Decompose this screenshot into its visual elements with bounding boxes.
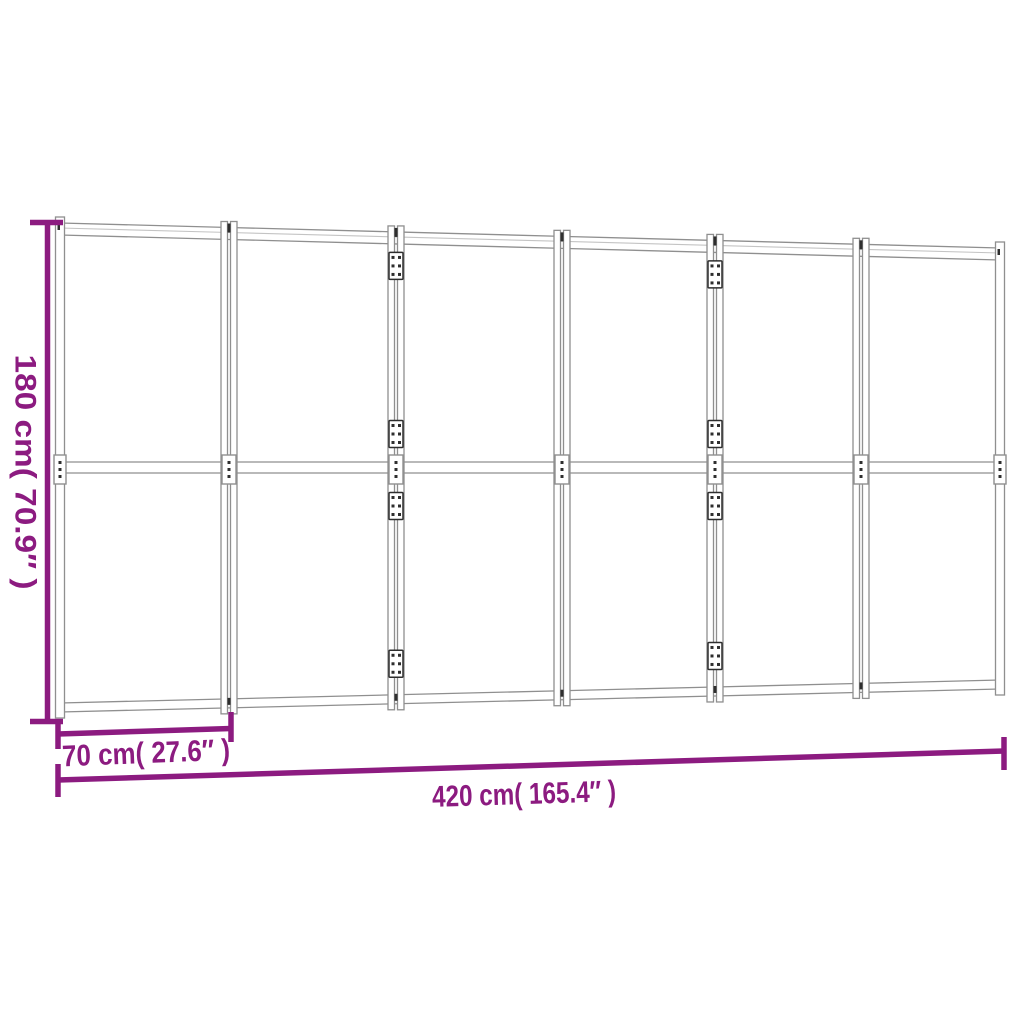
top-pivot-pin	[228, 223, 231, 232]
top-rail-edge	[861, 244, 1000, 248]
bottom-rail-edge	[229, 704, 396, 708]
top-rail-bevel	[715, 245, 861, 249]
hinge-screw	[711, 424, 714, 427]
bracket-screw	[228, 475, 231, 478]
hinge-screw	[711, 264, 714, 267]
hinge-screw	[717, 424, 720, 427]
bottom-rail-edge	[396, 691, 562, 695]
top-pivot-pin	[714, 236, 717, 245]
bracket-screw	[860, 475, 863, 478]
bottom-rail-edge	[715, 692, 861, 696]
hinge-screw	[717, 505, 720, 508]
panel-width-dimension-label: 70 cm( 27.6″ )	[61, 734, 230, 774]
hinge-screw	[392, 496, 395, 499]
top-rail-edge	[60, 235, 229, 239]
bottom-pivot-pin	[561, 690, 564, 697]
hinge-screw	[717, 281, 720, 284]
bottom-rail-edge	[562, 687, 715, 691]
hinge-screw	[398, 671, 401, 674]
hinge-screw	[392, 424, 395, 427]
bracket-screw	[561, 475, 564, 478]
bottom-rail-edge	[229, 695, 396, 699]
total-width-dimension-label: 420 cm( 165.4″ )	[432, 775, 617, 814]
bottom-pivot-pin	[395, 694, 398, 701]
hinge-screw	[392, 441, 395, 444]
top-rail-edge	[229, 239, 396, 243]
dimension-labels: 180 cm( 70.9″ ) 70 cm( 27.6″ ) 420 cm( 1…	[9, 355, 617, 814]
panel-width-dimension-line	[58, 729, 231, 735]
bracket-screw	[714, 461, 717, 464]
top-rail-edge	[229, 227, 396, 231]
bottom-rail-edge	[562, 696, 715, 700]
top-rail-edge	[396, 232, 562, 236]
hinge-screw	[392, 256, 395, 259]
top-pivot-pin	[860, 240, 863, 249]
hinge-screw	[398, 513, 401, 516]
bracket-screw	[228, 468, 231, 471]
hinge-screw	[392, 654, 395, 657]
top-rail-edge	[562, 248, 715, 252]
hinge-screw	[398, 441, 401, 444]
edge-pin	[998, 249, 1001, 255]
bracket-screw	[395, 475, 398, 478]
hinge-screw	[398, 424, 401, 427]
hinge-screw	[717, 441, 720, 444]
top-rail-edge	[715, 240, 861, 244]
hinge-screw	[711, 281, 714, 284]
bracket-screw	[561, 461, 564, 464]
hinge-screw	[711, 654, 714, 657]
bracket-screw	[999, 475, 1002, 478]
hinge-screw	[717, 264, 720, 267]
hinge-screw	[717, 646, 720, 649]
bottom-pivot-pin	[228, 698, 231, 705]
bottom-rail-edge	[715, 683, 861, 687]
bottom-pivot-pin	[714, 686, 717, 693]
top-rail-bevel	[229, 232, 396, 236]
bracket-screw	[59, 475, 62, 478]
bracket-screw	[999, 468, 1002, 471]
hinge-screw	[398, 273, 401, 276]
hinge-screw	[711, 505, 714, 508]
hinge-screw	[398, 654, 401, 657]
bracket-screw	[59, 468, 62, 471]
bracket-screw	[59, 461, 62, 464]
hinge-screw	[392, 264, 395, 267]
hinge-screw	[717, 654, 720, 657]
bracket-screw	[395, 468, 398, 471]
hinge-screw	[711, 433, 714, 436]
hinge-screw	[717, 663, 720, 666]
top-rail-bevel	[60, 228, 229, 232]
top-rail-bevel	[396, 237, 562, 241]
top-rail-bevel	[562, 241, 715, 245]
hinge-screw	[398, 662, 401, 665]
height-dimension-label: 180 cm( 70.9″ )	[9, 355, 42, 590]
bracket-screw	[714, 475, 717, 478]
room-divider-diagram-page: 180 cm( 70.9″ ) 70 cm( 27.6″ ) 420 cm( 1…	[0, 0, 1024, 1024]
bracket-screw	[561, 468, 564, 471]
bracket-screw	[714, 468, 717, 471]
room-divider-diagram: 180 cm( 70.9″ ) 70 cm( 27.6″ ) 420 cm( 1…	[0, 0, 1024, 1024]
hinge-screw	[717, 496, 720, 499]
hinge-screw	[392, 671, 395, 674]
bottom-rail-edge	[396, 700, 562, 704]
hinge-screw	[711, 441, 714, 444]
hinge-screw	[392, 273, 395, 276]
bottom-rail-edge	[861, 680, 1000, 683]
hinge-screw	[392, 505, 395, 508]
hinge-screw	[717, 273, 720, 276]
hinge-screw	[398, 256, 401, 259]
hinge-screw	[392, 513, 395, 516]
top-rail-bevel	[861, 249, 1000, 253]
bracket-screw	[228, 461, 231, 464]
bracket-screw	[395, 461, 398, 464]
bracket-screw	[999, 461, 1002, 464]
top-rail-edge	[715, 252, 861, 256]
bottom-pivot-pin	[860, 682, 863, 689]
hinge-screw	[711, 273, 714, 276]
top-rail-edge	[60, 223, 229, 227]
bottom-rail-edge	[861, 689, 1000, 692]
hinge-screw	[711, 646, 714, 649]
hinge-screw	[717, 513, 720, 516]
top-pivot-pin	[395, 228, 398, 237]
hinge-screw	[398, 496, 401, 499]
bracket-screw	[860, 461, 863, 464]
top-rail-edge	[562, 236, 715, 240]
hinge-screw	[711, 663, 714, 666]
bracket-screw	[860, 468, 863, 471]
hinge-screw	[398, 264, 401, 267]
hinge-screw	[398, 433, 401, 436]
hinge-screw	[711, 496, 714, 499]
hinge-screw	[717, 433, 720, 436]
hinge-screw	[392, 433, 395, 436]
hinge-screw	[711, 513, 714, 516]
top-rail-edge	[396, 244, 562, 248]
hinge-screw	[398, 505, 401, 508]
top-pivot-pin	[561, 232, 564, 241]
top-rail-edge	[861, 256, 1000, 260]
bottom-rail-edge	[60, 699, 229, 703]
bottom-rail-edge	[60, 708, 229, 712]
hinge-screw	[392, 662, 395, 665]
